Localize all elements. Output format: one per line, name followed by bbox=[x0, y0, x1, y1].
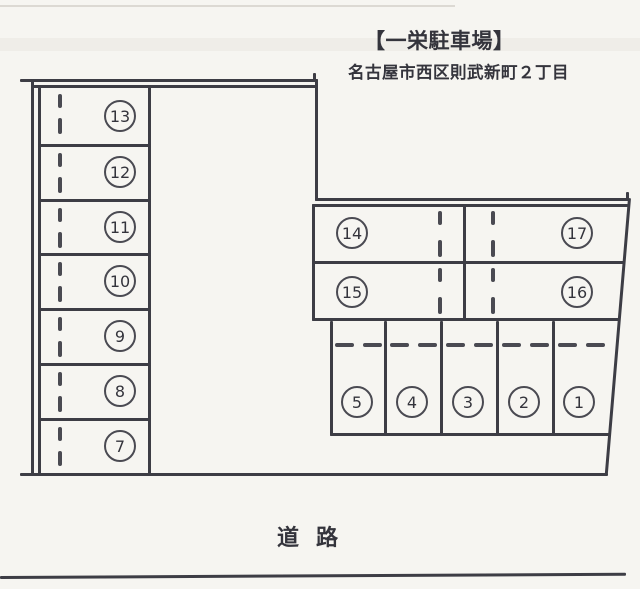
overshoot-tick bbox=[313, 73, 316, 80]
overshoot-tick bbox=[626, 192, 629, 199]
boundary-step-horizontal-line bbox=[315, 198, 629, 201]
boundary-top-inner-line bbox=[31, 85, 318, 88]
stall-number-4: 4 bbox=[396, 386, 428, 418]
wheel-stop-dash bbox=[418, 343, 437, 347]
stall-divider bbox=[38, 418, 151, 421]
boundary-top-outer-line bbox=[20, 79, 318, 82]
wheel-stop-dash bbox=[58, 177, 62, 193]
wheel-stop-dash bbox=[58, 94, 62, 108]
wheel-stop-dash bbox=[58, 451, 62, 466]
boundary-left-outer-line bbox=[31, 79, 34, 476]
wheel-stop-dash bbox=[474, 343, 493, 347]
wheel-stop-dash bbox=[502, 343, 521, 347]
stall-number-9: 9 bbox=[104, 320, 136, 352]
stall-number-1: 1 bbox=[563, 386, 595, 418]
boundary-step-vertical-line bbox=[315, 79, 318, 201]
wheel-stop-dash bbox=[438, 297, 442, 314]
stall-number-14: 14 bbox=[336, 217, 368, 249]
boundary-bottom-line bbox=[20, 473, 608, 476]
wheel-stop-dash bbox=[58, 341, 62, 357]
wheel-stop-dash bbox=[446, 343, 465, 347]
scanned-parking-diagram: 【一栄駐車場】 名古屋市西区則武新町２丁目 13 12 11 10 9 8 7 bbox=[0, 0, 640, 589]
stall-number-7: 7 bbox=[104, 430, 136, 462]
stall-number-2: 2 bbox=[508, 386, 540, 418]
wheel-stop-dash bbox=[58, 118, 62, 134]
stall-number-5: 5 bbox=[341, 386, 373, 418]
upper-block-top-line bbox=[312, 204, 628, 207]
wheel-stop-dash bbox=[438, 240, 442, 257]
wheel-stop-dash bbox=[491, 268, 495, 282]
wheel-stop-dash bbox=[586, 343, 605, 347]
stall-number-10: 10 bbox=[104, 265, 136, 297]
wheel-stop-dash bbox=[438, 268, 442, 282]
stall-divider bbox=[38, 199, 151, 202]
stall-number-8: 8 bbox=[104, 375, 136, 407]
bottom-block-column-line bbox=[330, 321, 333, 436]
scan-artifact-band bbox=[0, 38, 640, 51]
wheel-stop-dash bbox=[491, 211, 495, 225]
upper-block-bottom-line bbox=[312, 318, 620, 321]
wheel-stop-dash bbox=[58, 427, 62, 441]
wheel-stop-dash bbox=[438, 211, 442, 225]
wheel-stop-dash bbox=[558, 343, 577, 347]
bottom-block-column-line bbox=[496, 321, 499, 436]
stall-number-13: 13 bbox=[104, 100, 136, 132]
stall-number-3: 3 bbox=[452, 386, 484, 418]
bottom-block-column-line bbox=[440, 321, 443, 436]
wheel-stop-dash bbox=[335, 343, 354, 347]
stall-divider bbox=[38, 253, 151, 256]
wheel-stop-dash bbox=[491, 297, 495, 314]
wheel-stop-dash bbox=[58, 208, 62, 222]
scan-artifact-line bbox=[0, 5, 455, 7]
road-label: 道路 bbox=[277, 520, 355, 552]
wheel-stop-dash bbox=[58, 396, 62, 412]
wheel-stop-dash bbox=[363, 343, 382, 347]
stall-number-12: 12 bbox=[104, 156, 136, 188]
bottom-block-bottom-line bbox=[330, 433, 611, 436]
wheel-stop-dash bbox=[491, 240, 495, 257]
stall-number-11: 11 bbox=[104, 211, 136, 243]
stall-divider bbox=[38, 363, 151, 366]
upper-block-middle-divider bbox=[312, 261, 624, 264]
road-edge-line bbox=[0, 573, 626, 579]
wheel-stop-dash bbox=[58, 317, 62, 331]
stall-divider bbox=[38, 144, 151, 147]
stall-number-15: 15 bbox=[336, 276, 368, 308]
lot-title: 【一栄駐車場】 bbox=[364, 25, 515, 55]
bottom-block-column-line bbox=[552, 321, 555, 436]
stall-number-17: 17 bbox=[561, 217, 593, 249]
wheel-stop-dash bbox=[58, 153, 62, 167]
bottom-block-column-line bbox=[384, 321, 387, 436]
wheel-stop-dash bbox=[58, 232, 62, 248]
wheel-stop-dash bbox=[58, 262, 62, 276]
stall-number-16: 16 bbox=[561, 276, 593, 308]
wheel-stop-dash bbox=[58, 286, 62, 302]
stall-divider bbox=[38, 308, 151, 311]
wheel-stop-dash bbox=[530, 343, 549, 347]
wheel-stop-dash bbox=[58, 372, 62, 386]
wheel-stop-dash bbox=[390, 343, 409, 347]
lot-address: 名古屋市西区則武新町２丁目 bbox=[348, 59, 569, 83]
